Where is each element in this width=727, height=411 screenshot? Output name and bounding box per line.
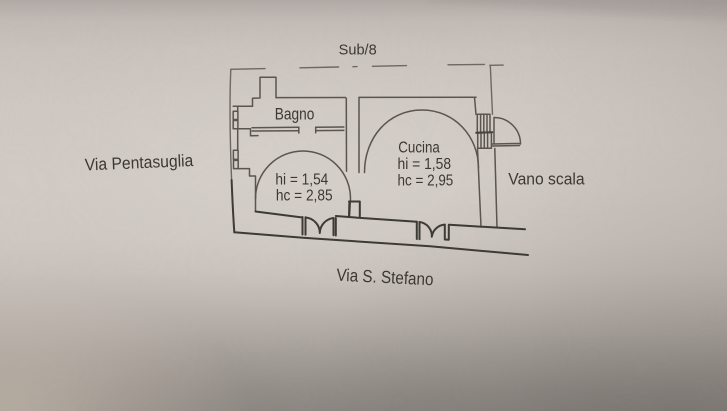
- svg-text:Sub/8: Sub/8: [339, 43, 377, 59]
- svg-text:Via Pentasuglia: Via Pentasuglia: [84, 151, 194, 175]
- svg-text:hi = 1,54: hi = 1,54: [275, 171, 328, 188]
- svg-text:hc = 2,85: hc = 2,85: [276, 187, 333, 204]
- svg-text:hi = 1,58: hi = 1,58: [398, 156, 452, 173]
- svg-text:Cucina: Cucina: [398, 140, 440, 157]
- svg-text:Vano scala: Vano scala: [508, 171, 585, 189]
- svg-text:hc = 2,95: hc = 2,95: [398, 173, 454, 190]
- svg-text:Bagno: Bagno: [275, 105, 315, 124]
- svg-text:Via S. Stefano: Via S. Stefano: [336, 265, 434, 290]
